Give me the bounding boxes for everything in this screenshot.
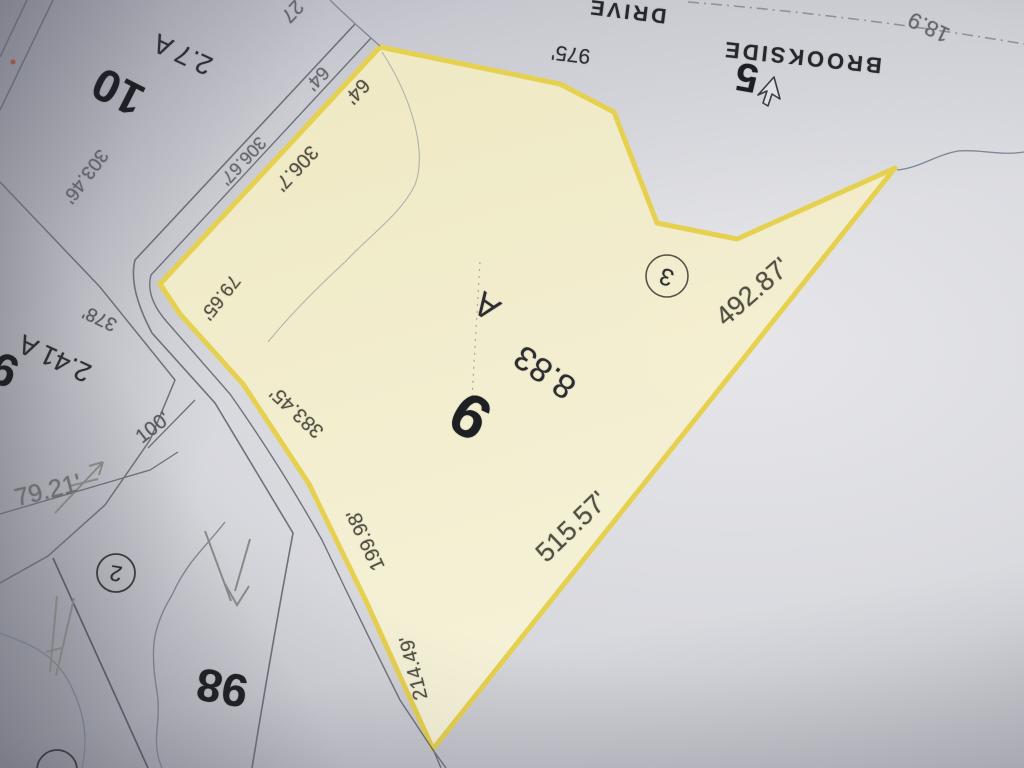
dimension-199-98: 199.98' bbox=[343, 506, 389, 573]
dimension-306-67: 306.67' bbox=[216, 133, 269, 188]
dimension-64-outer: 64' bbox=[302, 62, 333, 93]
dimension-27: 27 bbox=[277, 0, 307, 26]
dimension-100: 100' bbox=[132, 409, 174, 448]
area-label-8-83: 8.83 bbox=[508, 339, 582, 405]
dimension-975: 975' bbox=[550, 41, 591, 67]
map-labels: DRIVEBROOKSIDE518.927975'102.7 A303.46'3… bbox=[0, 0, 1024, 768]
lot-number-10: 10 bbox=[85, 60, 151, 124]
lot-number-9-partial: 9 bbox=[0, 344, 25, 397]
area-label-2-41-a: 2.41 A bbox=[15, 330, 96, 387]
dimension-64-inner: 64' bbox=[341, 75, 373, 108]
dimension-79-65: 79.65' bbox=[197, 271, 243, 323]
street-label-drive: DRIVE bbox=[586, 0, 667, 26]
point-marker-3: 3 bbox=[657, 262, 678, 289]
point-marker-2: 2 bbox=[108, 561, 124, 585]
dimension-378: 378' bbox=[80, 302, 120, 334]
dimension-492-87: 492.87' bbox=[711, 253, 795, 331]
tax-map-photo: DRIVEBROOKSIDE518.927975'102.7 A303.46'3… bbox=[0, 0, 1024, 768]
dimension-79-21: 79.21' bbox=[12, 471, 83, 512]
dimension-306-7: 306.7' bbox=[270, 141, 321, 194]
lot-number-9: 9 bbox=[440, 380, 502, 451]
dimension-303-46: 303.46' bbox=[59, 146, 111, 207]
dimension-383-45: 383.45' bbox=[266, 383, 327, 442]
lot-number-98: 98 bbox=[193, 661, 251, 715]
area-label-acres-a: A bbox=[468, 286, 506, 327]
dimension-515-57: 515.57' bbox=[531, 487, 613, 567]
dimension-214-49: 214.49' bbox=[396, 634, 431, 702]
dimension-18-9: 18.9 bbox=[905, 8, 953, 46]
area-label-2-7-a: 2.7 A bbox=[149, 29, 216, 79]
